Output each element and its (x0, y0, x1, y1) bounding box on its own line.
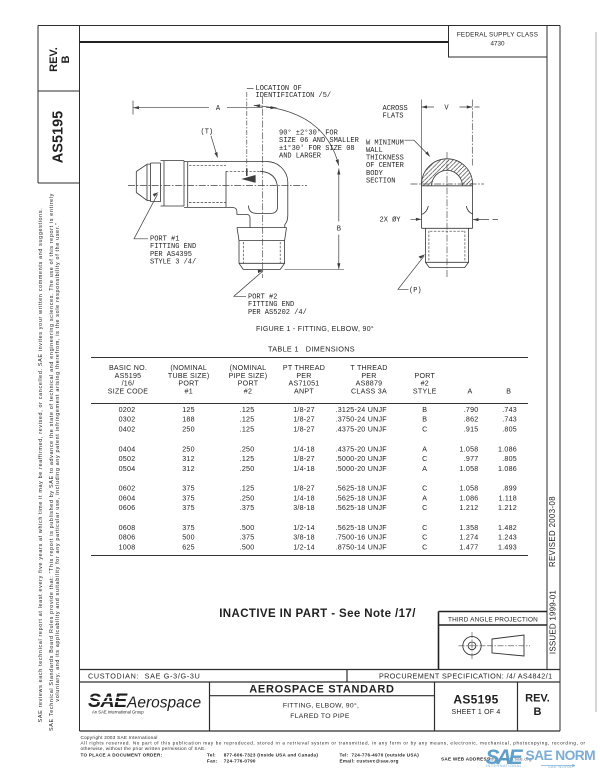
svg-text:REV.: REV. (525, 692, 550, 704)
svg-text:AND LARGER: AND LARGER (279, 153, 322, 161)
svg-text:All rights reserved. No part o: All rights reserved. No part of this pub… (81, 740, 586, 745)
svg-text:1.086: 1.086 (459, 494, 478, 502)
svg-text:B: B (422, 406, 427, 414)
svg-text:Tel: 877-606-7323 (inside: Tel: 877-606-7323 (inside USA and Canada… (207, 752, 318, 757)
svg-text:.915: .915 (464, 425, 479, 433)
svg-text:B: B (60, 55, 72, 63)
svg-text:0806: 0806 (119, 534, 136, 542)
svg-text:C: C (422, 504, 427, 512)
svg-text:FLATS: FLATS (383, 113, 404, 121)
svg-text:B: B (534, 706, 542, 718)
svg-text:CLASS 3A: CLASS 3A (351, 387, 387, 395)
svg-text:125: 125 (182, 406, 195, 414)
svg-text:1.482: 1.482 (498, 524, 517, 532)
svg-text:188: 188 (182, 416, 195, 424)
svg-text:Fax: 724-776-0790: Fax: 724-776-0790 (207, 758, 256, 763)
svg-text:3/8-18: 3/8-18 (293, 534, 315, 542)
svg-text:.5000-20 UNJF: .5000-20 UNJF (336, 455, 388, 463)
svg-text:1.212: 1.212 (459, 504, 478, 512)
svg-text:PIPE SIZE): PIPE SIZE) (229, 372, 268, 380)
svg-text:A: A (468, 387, 473, 395)
svg-text:T THREAD: T THREAD (350, 364, 387, 372)
svg-text:CUSTODIAN: SAE G-3/G-3U: CUSTODIAN: SAE G-3/G-3U (88, 672, 201, 681)
svg-text:PER: PER (296, 372, 311, 380)
svg-text:AS5195: AS5195 (115, 372, 142, 380)
svg-text:0602: 0602 (119, 485, 136, 493)
svg-text:#2: #2 (244, 387, 252, 395)
svg-text:SAE reviews each technical rep: SAE reviews each technical report at lea… (38, 208, 44, 723)
svg-text:1.058: 1.058 (459, 485, 478, 493)
svg-text:TO PLACE A DOCUMENT ORDER:: TO PLACE A DOCUMENT ORDER: (81, 752, 163, 757)
svg-text:.125: .125 (240, 425, 255, 433)
svg-text:/16/: /16/ (122, 380, 135, 388)
svg-text:.250: .250 (240, 445, 255, 453)
svg-text:PORT: PORT (178, 380, 199, 388)
svg-text:.3750-24 UNJF: .3750-24 UNJF (336, 416, 388, 424)
svg-text:0502: 0502 (119, 455, 136, 463)
svg-text:1.493: 1.493 (498, 544, 517, 552)
svg-text:SECTION: SECTION (366, 177, 395, 185)
svg-text:PORT: PORT (415, 372, 436, 380)
svg-text:FLARED TO PIPE: FLARED TO PIPE (290, 713, 350, 720)
svg-text:1/2-14: 1/2-14 (293, 544, 315, 552)
svg-text:375: 375 (182, 485, 195, 493)
svg-text:1.358: 1.358 (459, 524, 478, 532)
svg-text:.250: .250 (240, 465, 255, 473)
svg-text:PORT: PORT (238, 380, 259, 388)
svg-text:.805: .805 (502, 425, 517, 433)
svg-text:#1: #1 (185, 387, 193, 395)
svg-text:REVISED 2003-08: REVISED 2003-08 (548, 496, 557, 567)
svg-text:.790: .790 (464, 406, 479, 414)
svg-text:SHEET 1 OF 4: SHEET 1 OF 4 (452, 709, 501, 716)
svg-text:1.058: 1.058 (459, 465, 478, 473)
svg-text:625: 625 (182, 544, 195, 552)
svg-text:voluntary, and its applicabili: voluntary, and its applicability and sui… (55, 222, 61, 701)
svg-text:STYLE 3 /4/: STYLE 3 /4/ (150, 259, 196, 267)
svg-text:1.243: 1.243 (498, 534, 517, 542)
svg-text:(NOMINAL: (NOMINAL (170, 364, 207, 372)
svg-text:C: C (422, 485, 427, 493)
svg-text:Copyright 2003 SAE Internation: Copyright 2003 SAE International (81, 735, 158, 740)
svg-text:1.274: 1.274 (459, 534, 478, 542)
svg-text:A: A (422, 494, 427, 502)
svg-text:#2: #2 (421, 380, 429, 388)
svg-text:C: C (422, 455, 427, 463)
svg-text:1/4-18: 1/4-18 (293, 494, 315, 502)
svg-text:1.118: 1.118 (499, 494, 517, 502)
svg-text:C: C (422, 524, 427, 532)
svg-text:FIGURE 1 - FITTING, ELBOW, 90°: FIGURE 1 - FITTING, ELBOW, 90° (256, 325, 374, 333)
svg-text:.8750-14 UNJF: .8750-14 UNJF (336, 544, 388, 552)
svg-text:An SAE International Group: An SAE International Group (92, 710, 144, 715)
svg-text:C: C (422, 534, 427, 542)
svg-text:3/8-18: 3/8-18 (293, 504, 315, 512)
svg-text:AS5195: AS5195 (50, 111, 66, 163)
svg-text:A: A (216, 105, 221, 113)
svg-text:1.212: 1.212 (498, 504, 517, 512)
svg-text:(P): (P) (409, 287, 422, 295)
svg-text:1008: 1008 (119, 544, 136, 552)
svg-text:.375: .375 (240, 534, 255, 542)
svg-text:STYLE: STYLE (413, 387, 437, 395)
svg-text:0404: 0404 (119, 445, 136, 453)
svg-text:.250: .250 (240, 494, 255, 502)
svg-text:.805: .805 (502, 455, 517, 463)
svg-text:B: B (337, 226, 341, 234)
svg-text:.5000-20 UNJF: .5000-20 UNJF (336, 465, 388, 473)
svg-text:0604: 0604 (119, 494, 136, 502)
svg-text:AEROSPACE STANDARD: AEROSPACE STANDARD (249, 684, 394, 696)
svg-text:INACTIVE IN PART - See Note /1: INACTIVE IN PART - See Note /17/ (219, 608, 416, 620)
svg-text:1/2-14: 1/2-14 (293, 524, 315, 532)
svg-text:TABLE 1 DIMENSIONS: TABLE 1 DIMENSIONS (268, 344, 355, 353)
svg-text:.125: .125 (240, 406, 255, 414)
svg-text:FEDERAL SUPPLY CLASS: FEDERAL SUPPLY CLASS (457, 32, 538, 39)
svg-text:A: A (422, 465, 427, 473)
svg-text:.5625-18 UNJF: .5625-18 UNJF (336, 485, 388, 493)
svg-text:B: B (506, 387, 511, 395)
svg-text:FITTING, ELBOW, 90°,: FITTING, ELBOW, 90°, (283, 702, 359, 710)
svg-text:.375: .375 (240, 504, 255, 512)
svg-text:V: V (444, 104, 449, 112)
svg-text:.977: .977 (464, 455, 479, 463)
svg-text:.7500-16 UNJF: .7500-16 UNJF (336, 534, 388, 542)
svg-text:.743: .743 (502, 416, 517, 424)
svg-text:SIZE 06 AND SMALLER: SIZE 06 AND SMALLER (279, 137, 360, 145)
svg-text:BASIC NO.: BASIC NO. (109, 364, 147, 372)
svg-text:.5625-18 UNJF: .5625-18 UNJF (336, 494, 388, 502)
svg-text:1.086: 1.086 (498, 465, 517, 473)
svg-text:375: 375 (182, 494, 195, 502)
svg-text:SIZE CODE: SIZE CODE (108, 387, 149, 395)
svg-text:IDENTIFICATION /5/: IDENTIFICATION /5/ (256, 92, 332, 100)
svg-text:375: 375 (182, 504, 195, 512)
svg-text:otherwise, without the prior w: otherwise, without the prior written per… (81, 746, 206, 751)
svg-text:A: A (422, 445, 427, 453)
svg-text:0202: 0202 (119, 406, 136, 414)
svg-text:PER: PER (361, 372, 376, 380)
svg-text:1/8-27: 1/8-27 (293, 485, 315, 493)
svg-text:1.058: 1.058 (459, 445, 478, 453)
svg-text:PER AS5202 /4/: PER AS5202 /4/ (248, 309, 307, 317)
svg-text:INTERNATIONAL...: INTERNATIONAL... (486, 763, 526, 768)
svg-text:(T): (T) (201, 129, 214, 137)
svg-text:.500: .500 (240, 524, 255, 532)
svg-text:.5625-18 UNJF: .5625-18 UNJF (336, 504, 388, 512)
svg-text:.125: .125 (240, 416, 255, 424)
svg-text:Tel: 724-776-4970 (outside US: Tel: 724-776-4970 (outside USA) (340, 752, 420, 757)
svg-text:PT THREAD: PT THREAD (283, 364, 325, 372)
svg-text:2X ØY: 2X ØY (380, 216, 402, 225)
svg-text:0606: 0606 (119, 504, 136, 512)
svg-text:.3125-24 UNJF: .3125-24 UNJF (336, 406, 388, 414)
svg-text:250: 250 (182, 425, 195, 433)
svg-text:TUBE SIZE): TUBE SIZE) (168, 372, 210, 380)
svg-text:AS8879: AS8879 (356, 380, 383, 388)
svg-text:.4375-20 UNJF: .4375-20 UNJF (336, 425, 388, 433)
svg-text:.125: .125 (240, 455, 255, 463)
svg-text:1/8-27: 1/8-27 (293, 406, 315, 414)
svg-text:.5625-18 UNJF: .5625-18 UNJF (336, 524, 388, 532)
svg-text:0504: 0504 (119, 465, 136, 473)
svg-text:.125: .125 (240, 485, 255, 493)
svg-text:C: C (422, 544, 427, 552)
svg-text:375: 375 (182, 524, 195, 532)
svg-text:1/8-27: 1/8-27 (293, 455, 315, 463)
svg-text:1.086: 1.086 (498, 445, 517, 453)
svg-text:1/8-27: 1/8-27 (293, 425, 315, 433)
svg-text:1.477: 1.477 (459, 544, 478, 552)
svg-text:.743: .743 (502, 406, 517, 414)
svg-text:AS71051: AS71051 (289, 380, 320, 388)
svg-text:±1°30' FOR SIZE 08: ±1°30' FOR SIZE 08 (279, 144, 355, 153)
svg-text:0302: 0302 (119, 416, 136, 424)
svg-text:SAE NORM: SAE NORM (526, 748, 596, 763)
svg-text:PROCUREMENT SPECIFICATION: /4/: PROCUREMENT SPECIFICATION: /4/ AS4842/1 (379, 671, 553, 680)
svg-text:Email: custsvc@sae.org: Email: custsvc@sae.org (340, 758, 399, 763)
svg-text:B: B (422, 416, 427, 424)
svg-text:4730: 4730 (490, 41, 505, 48)
svg-text:.899: .899 (502, 485, 517, 493)
svg-text:312: 312 (182, 465, 195, 473)
svg-text:C: C (422, 425, 427, 433)
svg-text:1/8-27: 1/8-27 (293, 416, 315, 424)
svg-text:500: 500 (182, 534, 195, 542)
svg-text:SAE NORM: SAE NORM (548, 764, 572, 769)
svg-text:312: 312 (182, 455, 195, 463)
svg-text:ANPT: ANPT (294, 387, 314, 395)
svg-text:REV.: REV. (48, 47, 60, 72)
svg-text:0608: 0608 (119, 524, 136, 532)
svg-text:.862: .862 (464, 416, 479, 424)
svg-text:(NOMINAL: (NOMINAL (230, 364, 267, 372)
svg-text:1/4-18: 1/4-18 (293, 445, 315, 453)
svg-text:ISSUED 1999-01: ISSUED 1999-01 (548, 590, 557, 655)
svg-text:0402: 0402 (119, 425, 136, 433)
svg-text:90° ±2°30' FOR: 90° ±2°30' FOR (279, 128, 339, 137)
svg-text:250: 250 (182, 445, 195, 453)
svg-text:THIRD ANGLE PROJECTION: THIRD ANGLE PROJECTION (448, 616, 538, 623)
svg-text:.4375-20 UNJF: .4375-20 UNJF (336, 445, 388, 453)
svg-text:.500: .500 (240, 544, 255, 552)
svg-text:1/4-18: 1/4-18 (293, 465, 315, 473)
svg-text:AS5195: AS5195 (453, 692, 498, 706)
